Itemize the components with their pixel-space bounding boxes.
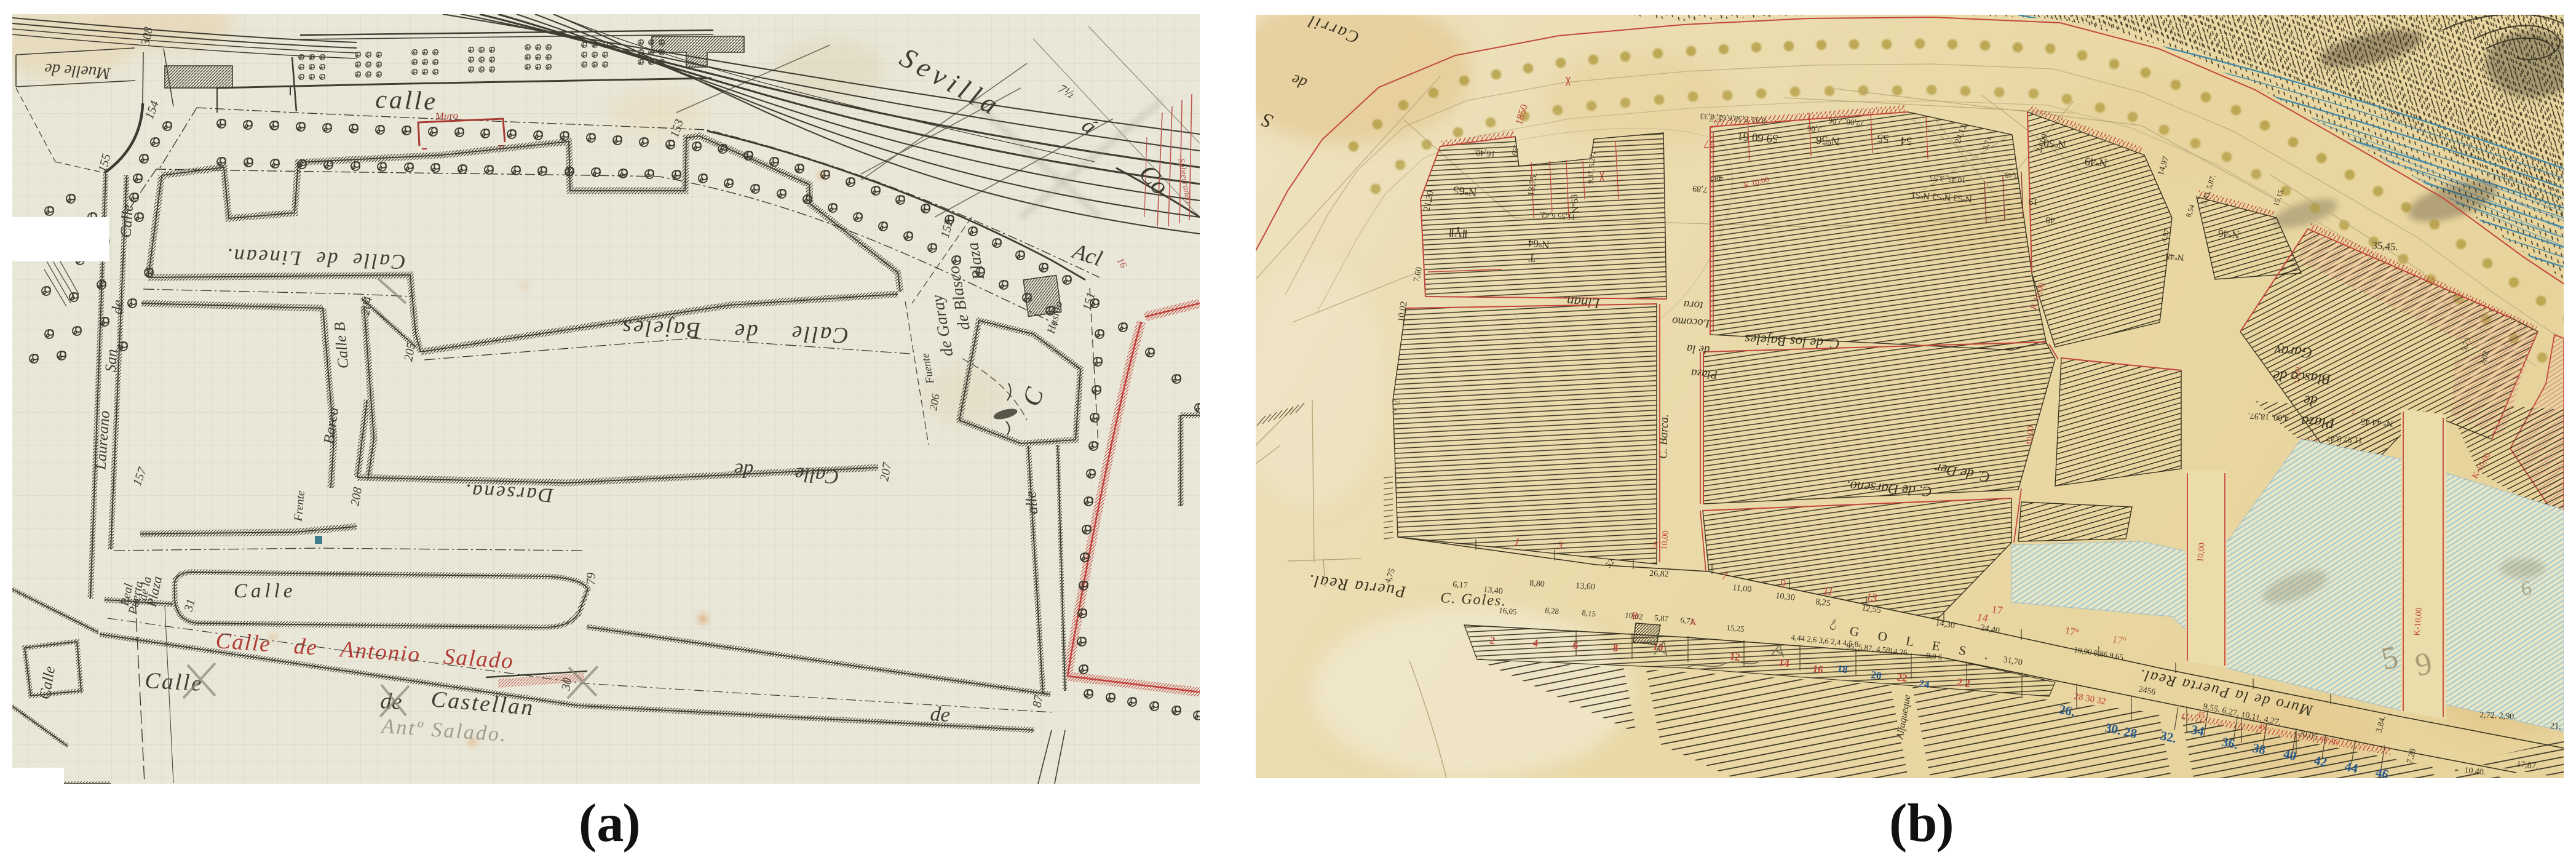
svg-text:79: 79 [584,572,598,585]
svg-text:C. Barca.: C. Barca. [1657,414,1671,459]
svg-text:alle: alle [1023,490,1041,515]
svg-text:de: de [109,300,127,315]
svg-text:46: 46 [2374,765,2390,778]
svg-text:5,87: 5,87 [1654,613,1670,623]
svg-text:17: 17 [1991,603,2003,616]
svg-text:35,45.: 35,45. [2372,239,2399,253]
svg-text:Nº56: Nº56 [1815,133,1840,148]
svg-text:Nº48: Nº48 [2165,251,2185,262]
svg-text:16,40.: 16,40. [1473,148,1496,158]
svg-text:Frente: Frente [292,490,307,523]
svg-text:T: T [1528,252,1536,265]
svg-text:14: 14 [1778,656,1790,669]
svg-text:20: 20 [1870,669,1882,682]
svg-text:A: A [1689,617,1697,627]
svg-text:13,60: 13,60 [1575,581,1595,592]
svg-text:24: 24 [1918,677,1930,690]
svg-text:10,00: 10,00 [2025,426,2036,446]
svg-text:Calle: Calle [234,580,296,602]
svg-text:Locomo: Locomo [1671,314,1711,330]
svg-text:12: 12 [1729,650,1740,663]
svg-text:8,15: 8,15 [1582,608,1596,618]
svg-text:16: 16 [1812,663,1823,675]
svg-text:15,25: 15,25 [1726,623,1745,634]
svg-text:19: 19 [2028,196,2038,207]
svg-text:B: B [1632,611,1639,621]
svg-text:de la: de la [1686,342,1710,357]
svg-text:7,89: 7,89 [1692,183,1708,194]
svg-text:calle: calle [375,86,438,116]
svg-text:Nº64: Nº64 [1528,237,1550,250]
svg-text:Linan.: Linan. [1563,293,1601,311]
svg-text:18: 18 [1836,663,1848,675]
svg-text:55: 55 [1877,132,1889,145]
svg-text:54: 54 [1900,134,1912,148]
svg-text:17º: 17º [2111,633,2126,647]
svg-text:3: 3 [1556,539,1564,552]
svg-text:57: 57 [1703,137,1716,151]
svg-text:487: 487 [1710,173,1723,183]
svg-text:10,00: 10,00 [1660,530,1671,551]
svg-text:65º: 65º [1510,145,1521,156]
svg-text:de: de [380,688,403,715]
svg-text:26,82: 26,82 [1649,569,1669,579]
svg-text:Plaza: Plaza [1690,367,1719,381]
svg-text:0,48: 0,48 [2005,171,2018,180]
svg-text:Darsena.: Darsena. [463,479,555,506]
svg-text:13: 13 [1866,591,1878,604]
svg-text:San: San [102,349,121,373]
svg-text:8,25: 8,25 [1815,597,1831,608]
svg-text:N 2: N 2 [1390,399,1402,415]
svg-text:48: 48 [2045,215,2055,225]
svg-text:tora: tora [1683,298,1703,312]
svg-text:2,06: 2,06 [1807,124,1821,134]
svg-text:2,72. 2,90.: 2,72. 2,90. [2479,711,2516,722]
svg-text:22: 22 [1896,671,1908,684]
svg-text:8,80: 8,80 [1529,579,1545,589]
svg-text:8,28: 8,28 [1545,605,1559,616]
svg-text:Muro: Muro [434,109,458,122]
svg-text:Nº49: Nº49 [2084,155,2107,169]
svg-text:21,: 21, [2550,722,2561,731]
svg-text:10,00: 10,00 [2196,543,2207,563]
svg-text:Nº63: Nº63 [1570,194,1581,213]
svg-text:Nº46: Nº46 [2217,228,2240,241]
svg-text:2 2: 2 2 [1956,676,1971,690]
svg-text:Nº65: Nº65 [1452,183,1477,198]
svg-text:de: de [929,703,951,727]
svg-text:Garay: Garay [2274,342,2313,360]
svg-text:Calle: Calle [117,204,137,239]
svg-text:11: 11 [1823,584,1834,598]
svg-text:6,17: 6,17 [1452,580,1468,591]
svg-text:14: 14 [1976,611,1989,624]
svg-text:ⅡƔⅡ: ⅡƔⅡ [1448,226,1468,240]
svg-text:17º: 17º [2064,624,2079,639]
